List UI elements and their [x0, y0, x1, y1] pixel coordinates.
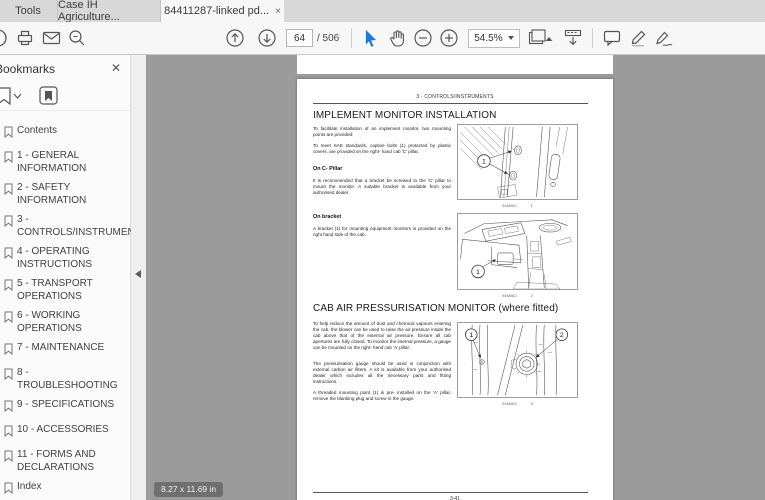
- bookmark-icon: [4, 366, 17, 392]
- bookmark-item-forms-declarations[interactable]: 11 - FORMS AND DECLARATIONS: [0, 445, 130, 477]
- bookmark-icon: [4, 398, 17, 417]
- document-pane[interactable]: 3 - CONTROLS/INSTRUMENTS IMPLEMENT MONIT…: [146, 55, 765, 500]
- footer-rule: [313, 492, 588, 493]
- page-footer-number: 3-41: [297, 496, 613, 500]
- hand-tool-icon[interactable]: [384, 25, 410, 51]
- tab-document-1-label: Case IH Agriculture...: [58, 0, 159, 23]
- header-rule: [313, 103, 588, 104]
- paragraph: To facilitate installation of an impleme…: [313, 126, 451, 138]
- section-title-cab-air-pressurisation: CAB AIR PRESSURISATION MONITOR (where fi…: [313, 303, 558, 314]
- bookmark-item-operating-instructions[interactable]: 4 - OPERATING INSTRUCTIONS: [0, 242, 130, 274]
- figure-callout-2: 2: [560, 332, 564, 339]
- tab-close-icon[interactable]: ×: [275, 6, 281, 17]
- tab-document-1[interactable]: Case IH Agriculture...: [57, 0, 159, 22]
- section-title-implement-monitor: IMPLEMENT MONITOR INSTALLATION: [313, 110, 496, 121]
- comment-icon[interactable]: [599, 25, 625, 51]
- bookmark-icon: [4, 341, 17, 360]
- figure-callout-1: 1: [476, 269, 480, 276]
- tab-tools[interactable]: Tools: [0, 0, 56, 22]
- bookmark-item-maintenance[interactable]: 7 - MAINTENANCE: [0, 338, 130, 363]
- bookmarks-panel-title: Bookmarks: [0, 62, 55, 76]
- figure-caption: 94M0633: [457, 401, 578, 406]
- paragraph: To meet SAE standards, captive bolts (1)…: [313, 143, 451, 155]
- email-icon[interactable]: [38, 25, 64, 51]
- toolbar: 64 / 506: [0, 22, 765, 55]
- select-tool-icon[interactable]: [358, 25, 384, 51]
- zoom-level-value: 54.5%: [474, 33, 502, 44]
- page-size-tooltip: 8.27 x 11.69 in: [154, 482, 223, 497]
- tab-tools-label: Tools: [15, 5, 41, 17]
- tab-document-2-label: 84411287-linked pd...: [164, 5, 269, 17]
- bookmark-icon: [4, 277, 17, 303]
- bookmark-item-accessories[interactable]: 10 - ACCESSORIES: [0, 420, 130, 445]
- panel-edge-strip: [131, 55, 146, 500]
- bookmark-options-icon[interactable]: [0, 85, 30, 107]
- page-number-input[interactable]: 64: [286, 29, 313, 47]
- figure-c-pillar-bolts: 1: [457, 124, 578, 200]
- chevron-down-icon: [508, 36, 514, 40]
- figure-dashboard-bracket: 1: [457, 213, 578, 290]
- acrobat-window: Tools Case IH Agriculture... 84411287-li…: [0, 0, 765, 500]
- bookmark-icon: [4, 480, 17, 499]
- figure-callout-1: 1: [469, 332, 473, 339]
- tab-bar: Tools Case IH Agriculture... 84411287-li…: [0, 0, 765, 22]
- paragraph: It is recommended that a bracket be scre…: [313, 178, 451, 196]
- page-total-label: / 506: [317, 33, 339, 44]
- zoom-in-icon[interactable]: [436, 25, 462, 51]
- bookmark-item-troubleshooting[interactable]: 8 - TROUBLESHOOTING: [0, 363, 130, 395]
- bookmark-item-working-operations[interactable]: 6 - WORKING OPERATIONS: [0, 306, 130, 338]
- zoom-level-dropdown[interactable]: 54.5%: [468, 29, 519, 48]
- toolbar-divider: [351, 28, 352, 48]
- bookmark-item-transport-operations[interactable]: 5 - TRANSPORT OPERATIONS: [0, 274, 130, 306]
- print-icon[interactable]: [12, 25, 38, 51]
- next-page-icon[interactable]: [254, 25, 280, 51]
- bookmark-icon: [4, 124, 17, 143]
- figure-callout-1: 1: [482, 159, 486, 166]
- bookmarks-list: Contents 1 - GENERAL INFORMATION 2 - SAF…: [0, 111, 130, 500]
- search-icon[interactable]: [64, 25, 90, 51]
- bookmark-item-safety-information[interactable]: 2 - SAFETY INFORMATION: [0, 178, 130, 210]
- bookmark-item-contents[interactable]: Contents: [0, 121, 130, 146]
- figure-caption: 94M0622: [457, 293, 578, 298]
- toolbar-divider: [592, 28, 593, 48]
- bookmark-item-index[interactable]: Index: [0, 477, 130, 500]
- page-scrolling-icon[interactable]: [560, 25, 586, 51]
- tab-document-2-active[interactable]: 84411287-linked pd... ×: [160, 0, 284, 22]
- bookmark-icon: [4, 423, 17, 442]
- fit-page-icon[interactable]: [526, 25, 556, 51]
- bookmark-icon: [4, 149, 17, 175]
- bookmark-item-general-information[interactable]: 1 - GENERAL INFORMATION: [0, 146, 130, 178]
- running-header: 3 - CONTROLS/INSTRUMENTS: [297, 94, 613, 100]
- subheading-on-c-pillar: On C- Pillar: [313, 166, 342, 172]
- expand-current-bookmark-icon[interactable]: [38, 84, 60, 113]
- save-icon[interactable]: [0, 25, 12, 51]
- previous-page-bottom: [297, 55, 613, 74]
- paragraph: A bracket (1) for mounting equipment mon…: [313, 226, 451, 238]
- collapse-panel-icon[interactable]: [135, 270, 141, 278]
- previous-page-icon[interactable]: [222, 25, 248, 51]
- zoom-out-icon[interactable]: [410, 25, 436, 51]
- bookmark-icon: [4, 309, 17, 335]
- sign-pen-icon[interactable]: [651, 25, 677, 51]
- bookmarks-panel: Bookmarks ✕ Contents: [0, 55, 131, 500]
- bookmark-item-specifications[interactable]: 9 - SPECIFICATIONS: [0, 395, 130, 420]
- paragraph: A threaded mounting point (1) is pre- in…: [313, 390, 451, 402]
- paragraph: The pressurisation gauge should be used …: [313, 361, 451, 385]
- bookmark-icon: [4, 181, 17, 207]
- paragraph: To help reduce the amount of dust and ch…: [313, 321, 451, 351]
- close-icon[interactable]: ✕: [111, 61, 121, 75]
- highlight-icon[interactable]: [625, 25, 651, 51]
- pdf-page: 3 - CONTROLS/INSTRUMENTS IMPLEMENT MONIT…: [297, 79, 613, 500]
- figure-a-pillar-gauge: 1 2: [457, 322, 578, 398]
- figure-caption: 94M0611: [457, 203, 578, 208]
- bookmark-icon: [4, 448, 17, 474]
- bookmark-icon: [4, 213, 17, 239]
- bookmark-item-controls-instruments[interactable]: 3 - CONTROLS/INSTRUMENTS: [0, 210, 130, 242]
- bookmark-icon: [4, 245, 17, 271]
- subheading-on-bracket: On bracket: [313, 214, 341, 220]
